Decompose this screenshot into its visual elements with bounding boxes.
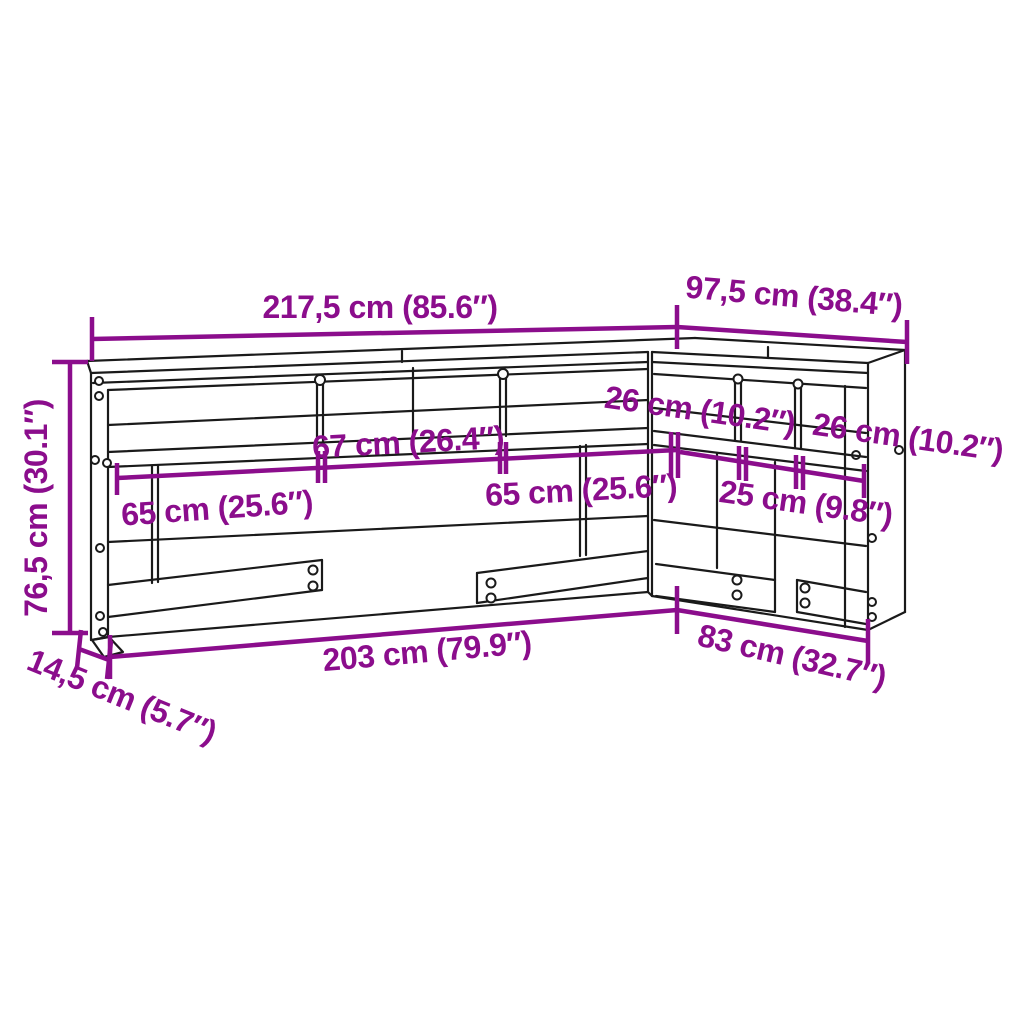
dim-label-side-opening-near: 26 cm (10.2″) [602,379,797,441]
left-side-panel [91,373,123,657]
dim-label-height: 76,5 cm (30.1″) [18,399,54,617]
dim-label-left-opening: 65 cm (25.6″) [120,483,314,532]
dim-label-overall-width: 217,5 cm (85.6″) [262,289,497,325]
top-board [87,338,905,390]
dim-line-height [52,362,88,633]
diagram-svg: 217,5 cm (85.6″) 97,5 cm (38.4″) 76,5 cm… [0,0,1024,1024]
dim-label-side-opening-far: 26 cm (10.2″) [810,406,1005,468]
dim-label-inner-width: 203 cm (79.9″) [321,624,533,678]
right-end-panel [845,350,905,630]
dim-label-side-width: 97,5 cm (38.4″) [684,269,904,324]
dim-line-side-width [677,320,907,364]
lower-shelf-row-main [108,445,648,617]
product-dimension-diagram: 217,5 cm (85.6″) 97,5 cm (38.4″) 76,5 cm… [0,0,1024,1024]
